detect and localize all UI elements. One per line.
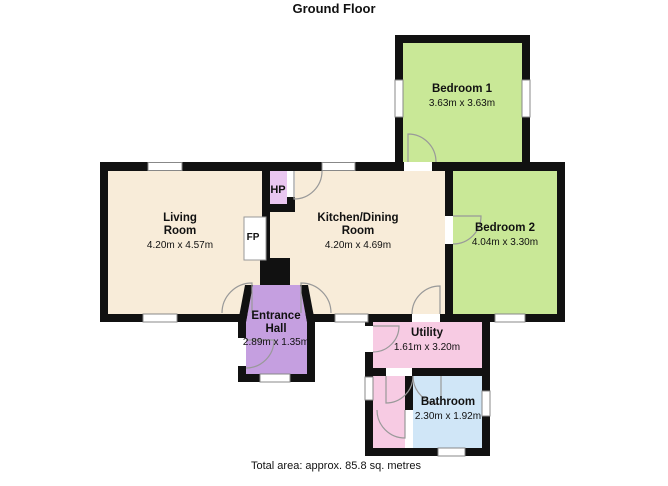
wall-bedroom1-top xyxy=(395,35,530,43)
page-title: Ground Floor xyxy=(292,2,375,15)
room-dims-entrance: 2.89m x 1.35m xyxy=(243,336,309,349)
door-gap-bedroom1 xyxy=(404,162,432,171)
window-bedroom2-bottom xyxy=(495,314,525,322)
room-label-kitchen-line1: Kitchen/Dining xyxy=(317,212,398,225)
room-dims-bathroom: 2.30m x 1.92m xyxy=(415,410,481,423)
room-label-bedroom1: Bedroom 1 xyxy=(432,83,492,96)
room-dims-bedroom2: 4.04m x 3.30m xyxy=(472,236,538,249)
room-label-living-line1: Living xyxy=(163,212,197,225)
window-living-top xyxy=(148,163,182,171)
window-bedroom1-right xyxy=(522,80,530,117)
room-label-entrance-line1: Entrance xyxy=(251,310,300,323)
window-living-bottom xyxy=(143,314,177,322)
door-gap-bedroom2 xyxy=(445,216,453,244)
door-gap-kitchen-utility xyxy=(412,314,440,322)
window-kitchen-bottom xyxy=(335,314,368,322)
room-label-bedroom2: Bedroom 2 xyxy=(475,222,535,235)
wall-hall-stub xyxy=(260,258,290,285)
door-gap-utility-exterior xyxy=(365,326,373,352)
room-dims-living: 4.20m x 4.57m xyxy=(147,239,213,252)
wall-bedroom2-right xyxy=(557,162,565,322)
window-inner-hall-left xyxy=(365,377,373,400)
window-bathroom-right xyxy=(482,391,490,416)
wall-utility-bottom xyxy=(365,448,490,456)
door-gap-utility-hall xyxy=(386,368,412,376)
room-label-entrance-line2: Hall xyxy=(265,323,286,336)
room-dims-kitchen: 4.20m x 4.69m xyxy=(325,239,391,252)
wall-utility-right xyxy=(482,314,490,456)
room-dims-utility: 1.61m x 3.20m xyxy=(394,341,460,354)
room-dims-bedroom1: 3.63m x 3.63m xyxy=(429,97,495,110)
room-label-utility: Utility xyxy=(411,327,443,340)
window-bedroom1-left xyxy=(395,80,403,117)
hot-press-label: HP xyxy=(270,184,285,197)
room-label-living-line2: Room xyxy=(164,225,197,238)
wall-bathroom-stub xyxy=(405,376,413,410)
window-kitchen-top xyxy=(322,163,355,171)
floor-plan: Ground Floor Total area: approx. 85.8 sq… xyxy=(0,0,668,486)
window-bathroom-bottom xyxy=(438,448,465,456)
window-hall-bottom xyxy=(260,374,290,382)
total-area-text: Total area: approx. 85.8 sq. metres xyxy=(251,460,421,473)
room-label-bathroom: Bathroom xyxy=(421,396,475,409)
wall-living-left xyxy=(100,162,108,322)
wall-hot-press-bottom xyxy=(262,204,295,212)
fireplace-label: FP xyxy=(247,231,260,244)
door-gap-hall-bathroom xyxy=(405,410,413,448)
room-label-kitchen-line2: Room xyxy=(342,225,375,238)
